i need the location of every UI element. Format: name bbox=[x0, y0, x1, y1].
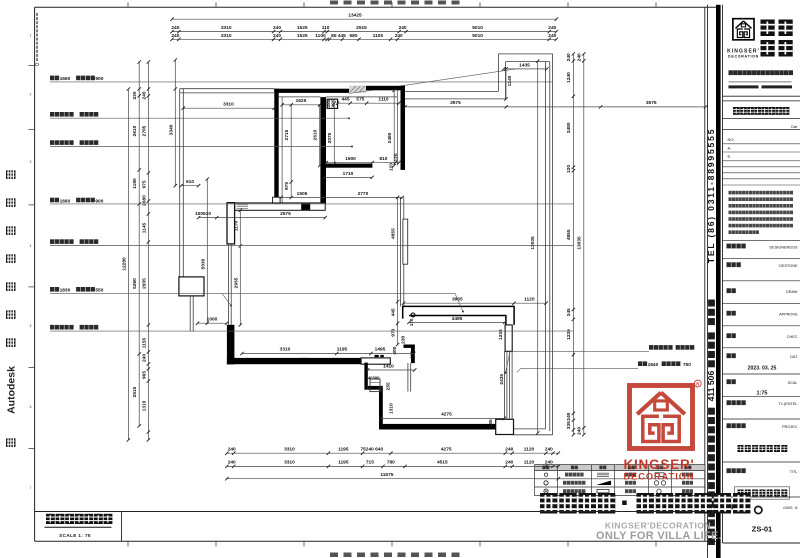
svg-text:DESIGNERDOS: DESIGNERDOS bbox=[769, 245, 798, 249]
svg-text:7: 7 bbox=[30, 486, 32, 490]
svg-text:3675: 3675 bbox=[646, 100, 657, 106]
svg-text:445: 445 bbox=[341, 97, 349, 103]
svg-text:230: 230 bbox=[132, 91, 138, 99]
svg-text:APPROVE: APPROVE bbox=[779, 313, 798, 317]
svg-text:2480: 2480 bbox=[566, 122, 572, 133]
svg-text:900: 900 bbox=[95, 76, 103, 82]
svg-text:1235: 1235 bbox=[566, 329, 572, 340]
svg-text:DAT: DAT bbox=[790, 355, 798, 359]
svg-text:KINGSER': KINGSER' bbox=[623, 457, 694, 472]
svg-text:240: 240 bbox=[141, 91, 147, 99]
svg-text:120: 120 bbox=[388, 163, 394, 171]
svg-text:750: 750 bbox=[683, 362, 691, 368]
svg-text:405: 405 bbox=[331, 99, 337, 107]
svg-text:610: 610 bbox=[186, 179, 194, 185]
svg-text:A.: A. bbox=[728, 145, 732, 150]
svg-text:1240: 1240 bbox=[566, 72, 572, 83]
svg-text:240: 240 bbox=[577, 427, 583, 435]
svg-text:SCALE 1: 75: SCALE 1: 75 bbox=[59, 533, 91, 538]
svg-text:ZS-01: ZS-01 bbox=[752, 524, 772, 533]
svg-text:780: 780 bbox=[387, 460, 395, 466]
svg-text:1310: 1310 bbox=[141, 400, 147, 411]
svg-text:5010: 5010 bbox=[472, 33, 483, 39]
svg-text:CHEC: CHEC bbox=[787, 335, 798, 339]
svg-text:2023. 03. 25: 2023. 03. 25 bbox=[748, 365, 777, 371]
svg-text:4855: 4855 bbox=[566, 229, 572, 240]
svg-text:4275: 4275 bbox=[441, 412, 452, 418]
svg-text:2515: 2515 bbox=[356, 25, 367, 31]
svg-text:550: 550 bbox=[95, 288, 103, 294]
svg-text:2515: 2515 bbox=[132, 386, 138, 397]
svg-text:1410: 1410 bbox=[383, 363, 394, 369]
svg-text:DECORATION: DECORATION bbox=[623, 472, 694, 482]
svg-text:3310: 3310 bbox=[221, 33, 232, 39]
svg-text:Autodesk: Autodesk bbox=[6, 366, 18, 414]
svg-text:1840: 1840 bbox=[648, 362, 659, 368]
svg-text:1235: 1235 bbox=[498, 329, 504, 340]
svg-text:1525: 1525 bbox=[297, 25, 308, 31]
svg-text:3310: 3310 bbox=[284, 446, 295, 452]
svg-text:2610: 2610 bbox=[313, 129, 319, 140]
svg-text:3310: 3310 bbox=[221, 25, 232, 31]
svg-text:445: 445 bbox=[390, 308, 396, 316]
svg-text:1105: 1105 bbox=[373, 33, 384, 39]
svg-text:1180: 1180 bbox=[132, 178, 138, 189]
svg-text:230: 230 bbox=[401, 335, 407, 343]
svg-text:1120: 1120 bbox=[524, 446, 535, 452]
svg-text:240: 240 bbox=[566, 53, 572, 61]
svg-text:1:75: 1:75 bbox=[756, 390, 767, 396]
svg-text:4: 4 bbox=[30, 244, 32, 248]
svg-text:1505: 1505 bbox=[297, 191, 308, 197]
svg-text:2610: 2610 bbox=[132, 125, 138, 136]
svg-text:DECORATION: DECORATION bbox=[728, 55, 759, 59]
svg-text:1600: 1600 bbox=[345, 156, 356, 162]
svg-text:E.: E. bbox=[728, 153, 732, 158]
svg-text:1195: 1195 bbox=[338, 460, 349, 466]
svg-text:5010: 5010 bbox=[472, 25, 483, 31]
svg-text:DESTONE: DESTONE bbox=[779, 264, 798, 268]
svg-text:5260: 5260 bbox=[132, 278, 138, 289]
svg-text:5: 5 bbox=[30, 324, 32, 328]
svg-text:1: 1 bbox=[30, 34, 32, 38]
svg-text:13035: 13035 bbox=[577, 236, 583, 250]
svg-text:13425: 13425 bbox=[348, 13, 362, 19]
svg-text:2075: 2075 bbox=[327, 132, 333, 143]
svg-text:240: 240 bbox=[566, 412, 572, 420]
svg-text:13035: 13035 bbox=[530, 236, 536, 250]
svg-text:575: 575 bbox=[356, 97, 364, 103]
svg-text:240: 240 bbox=[548, 33, 556, 39]
svg-text:900: 900 bbox=[95, 198, 103, 204]
svg-text:240: 240 bbox=[141, 354, 147, 362]
svg-text:6: 6 bbox=[30, 405, 32, 409]
svg-text:975: 975 bbox=[141, 180, 147, 188]
svg-text:1120: 1120 bbox=[524, 460, 535, 466]
svg-text:TEL (86) 0311-88995555: TEL (86) 0311-88995555 bbox=[706, 128, 716, 263]
svg-text:1155: 1155 bbox=[141, 337, 147, 348]
svg-text:1170: 1170 bbox=[233, 220, 239, 231]
svg-text:4275: 4275 bbox=[441, 446, 452, 452]
svg-text:1100: 1100 bbox=[315, 33, 326, 39]
svg-text:120: 120 bbox=[566, 165, 572, 173]
svg-text:100530: 100530 bbox=[195, 211, 211, 217]
svg-text:975: 975 bbox=[284, 182, 290, 190]
svg-text:580: 580 bbox=[349, 33, 357, 39]
svg-text:1830: 1830 bbox=[60, 288, 71, 294]
svg-text:240: 240 bbox=[545, 446, 553, 452]
svg-text:1525: 1525 bbox=[297, 33, 308, 39]
svg-text:715: 715 bbox=[366, 460, 374, 466]
svg-text:965: 965 bbox=[141, 371, 147, 379]
svg-text:4855: 4855 bbox=[390, 228, 396, 239]
svg-text:1145: 1145 bbox=[141, 222, 147, 233]
svg-text:1120: 1120 bbox=[524, 296, 535, 302]
svg-text:SCAL: SCAL bbox=[788, 381, 798, 385]
svg-text:2935: 2935 bbox=[233, 277, 239, 288]
svg-text:1495: 1495 bbox=[375, 347, 386, 353]
svg-text:540300: 540300 bbox=[366, 376, 381, 381]
svg-text:2935: 2935 bbox=[141, 278, 147, 289]
svg-text:810: 810 bbox=[379, 156, 387, 162]
svg-text:1525: 1525 bbox=[296, 98, 307, 104]
svg-text:DWG. N: DWG. N bbox=[783, 506, 797, 510]
svg-text:12280: 12280 bbox=[121, 257, 127, 271]
svg-text:3310: 3310 bbox=[284, 460, 295, 466]
svg-text:345: 345 bbox=[566, 308, 572, 316]
svg-text:240: 240 bbox=[273, 25, 281, 31]
svg-text:2: 2 bbox=[30, 93, 32, 97]
svg-text:120: 120 bbox=[393, 153, 399, 161]
svg-text:3310: 3310 bbox=[223, 102, 234, 108]
svg-text:2715: 2715 bbox=[284, 129, 290, 140]
svg-text:KINGSER': KINGSER' bbox=[727, 49, 760, 55]
svg-text:2480: 2480 bbox=[387, 132, 393, 143]
svg-text:255: 255 bbox=[386, 382, 392, 390]
svg-text:3310: 3310 bbox=[280, 347, 291, 353]
svg-text:KINGSER'DECORATION: KINGSER'DECORATION bbox=[605, 521, 711, 531]
svg-text:ONLY FOR VILLA LIFE.: ONLY FOR VILLA LIFE. bbox=[596, 530, 722, 542]
svg-text:335: 335 bbox=[566, 421, 572, 429]
svg-text:Dat: Dat bbox=[791, 125, 798, 129]
svg-text:335: 335 bbox=[488, 419, 494, 427]
svg-text:DRAW: DRAW bbox=[786, 290, 798, 294]
svg-text:3: 3 bbox=[30, 160, 32, 164]
svg-text:2435: 2435 bbox=[499, 374, 505, 385]
svg-text:PROJEC: PROJEC bbox=[782, 425, 798, 429]
svg-text:5030: 5030 bbox=[200, 258, 206, 269]
svg-text:11575: 11575 bbox=[380, 472, 393, 478]
svg-text:240: 240 bbox=[545, 460, 553, 466]
svg-text:1435: 1435 bbox=[519, 62, 530, 68]
svg-text:1310: 1310 bbox=[388, 403, 394, 414]
svg-text:1195: 1195 bbox=[338, 446, 349, 452]
svg-text:240: 240 bbox=[548, 25, 556, 31]
svg-text:3495: 3495 bbox=[452, 316, 463, 322]
svg-text:1110: 1110 bbox=[378, 97, 388, 103]
svg-text:1710: 1710 bbox=[343, 171, 354, 177]
svg-text:1240: 1240 bbox=[507, 75, 513, 86]
svg-text:2705: 2705 bbox=[141, 125, 147, 136]
svg-text:970: 970 bbox=[390, 328, 396, 336]
svg-text:NO.: NO. bbox=[728, 137, 735, 142]
svg-text:TL:(ENTEL: TL:(ENTEL bbox=[779, 402, 798, 406]
svg-text:3575: 3575 bbox=[450, 100, 461, 106]
svg-text:3340: 3340 bbox=[168, 124, 174, 135]
svg-text:1660: 1660 bbox=[60, 76, 71, 82]
svg-text:4515: 4515 bbox=[437, 460, 448, 466]
svg-text:1660: 1660 bbox=[60, 198, 71, 204]
svg-text:2770: 2770 bbox=[358, 191, 369, 197]
svg-text:240: 240 bbox=[171, 25, 179, 31]
svg-text:TITL: TITL bbox=[790, 470, 798, 474]
svg-text:411 506: 411 506 bbox=[706, 371, 716, 402]
svg-text:240: 240 bbox=[577, 53, 583, 61]
svg-text:2575: 2575 bbox=[280, 211, 291, 217]
